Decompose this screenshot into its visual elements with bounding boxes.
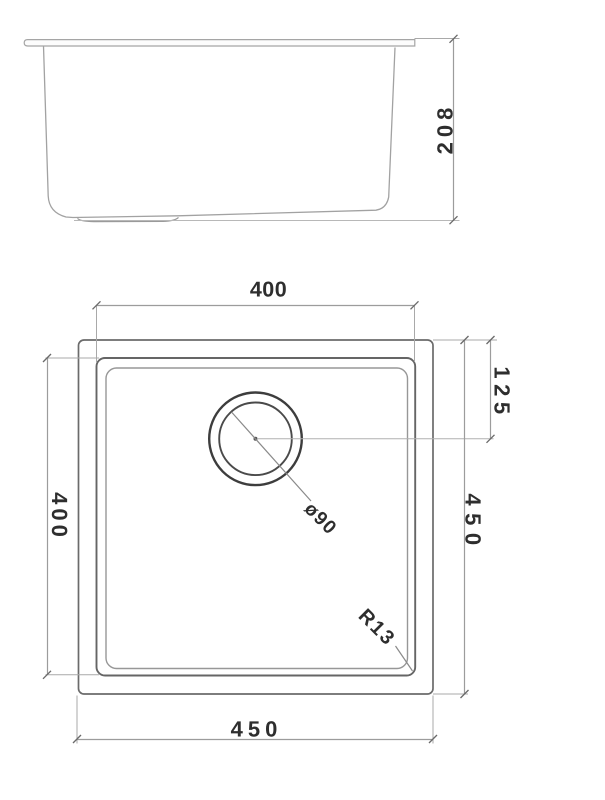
svg-text:400: 400 [250, 278, 287, 302]
svg-text:208: 208 [433, 103, 458, 155]
svg-text:450: 450 [231, 717, 283, 742]
svg-text:450: 450 [461, 493, 486, 552]
svg-text:125: 125 [490, 366, 515, 419]
svg-text:400: 400 [47, 492, 72, 541]
